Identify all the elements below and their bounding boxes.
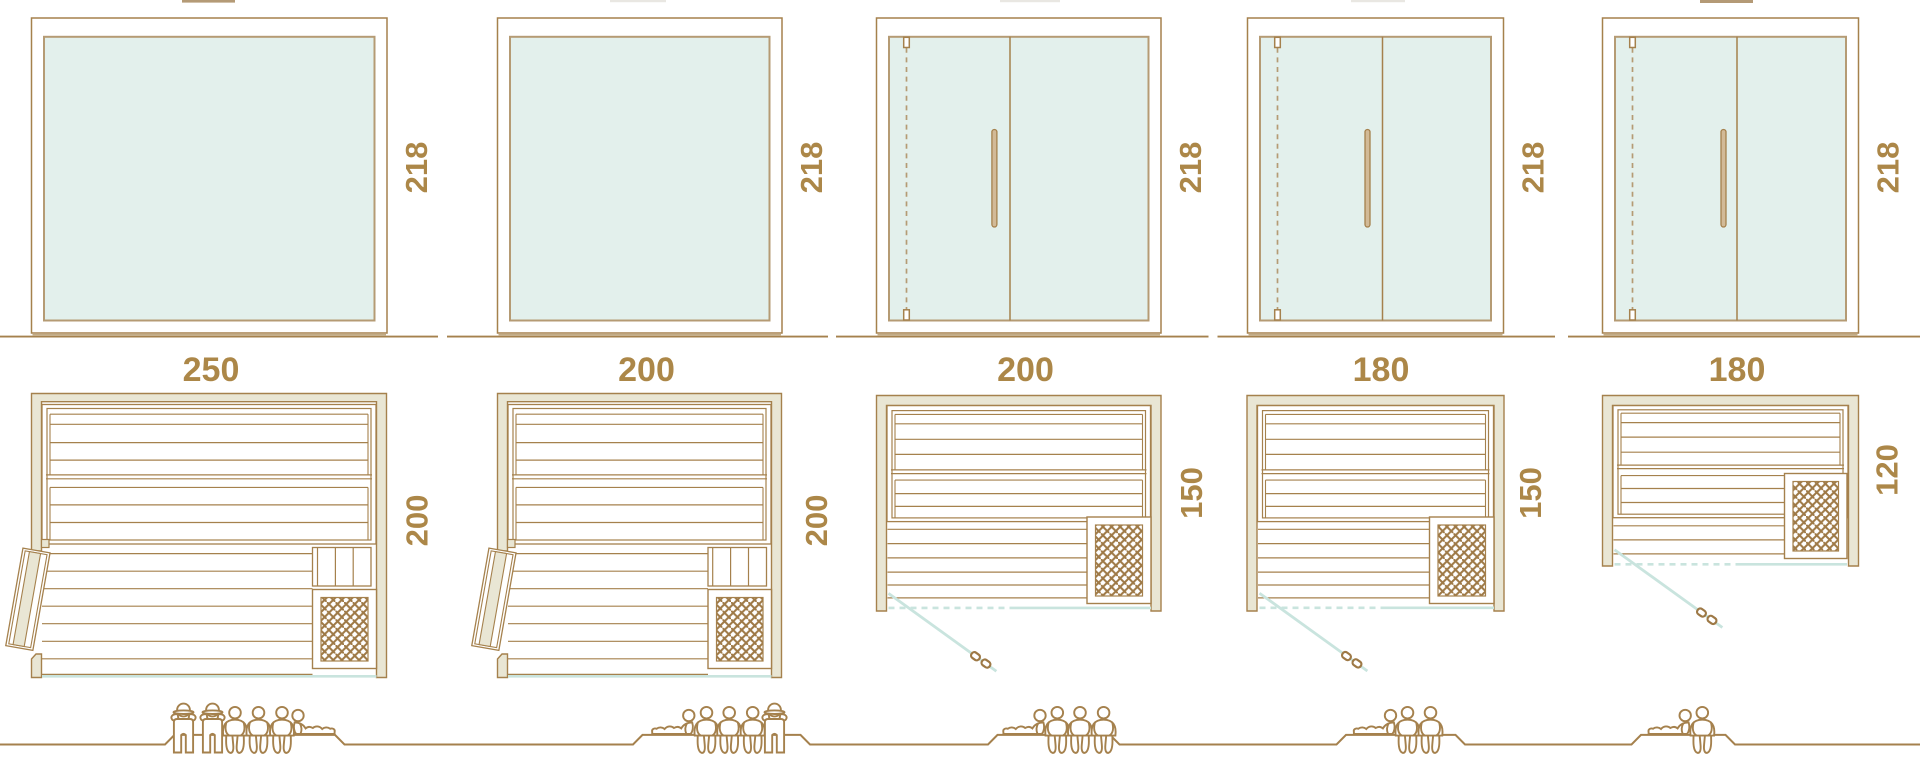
svg-text:200: 200 <box>618 351 675 389</box>
svg-text:218: 218 <box>1871 142 1906 194</box>
svg-text:180: 180 <box>1353 351 1410 389</box>
svg-text:250: 250 <box>183 351 240 389</box>
svg-text:200: 200 <box>799 495 834 547</box>
svg-text:218: 218 <box>794 142 829 194</box>
svg-text:150: 150 <box>1513 467 1548 519</box>
svg-text:218: 218 <box>399 142 434 194</box>
svg-text:200: 200 <box>997 351 1054 389</box>
svg-text:200: 200 <box>400 495 435 547</box>
svg-text:218: 218 <box>1173 142 1208 194</box>
svg-text:180: 180 <box>1709 351 1766 389</box>
svg-text:120: 120 <box>1870 444 1905 496</box>
svg-text:218: 218 <box>1516 142 1551 194</box>
svg-text:150: 150 <box>1174 467 1209 519</box>
